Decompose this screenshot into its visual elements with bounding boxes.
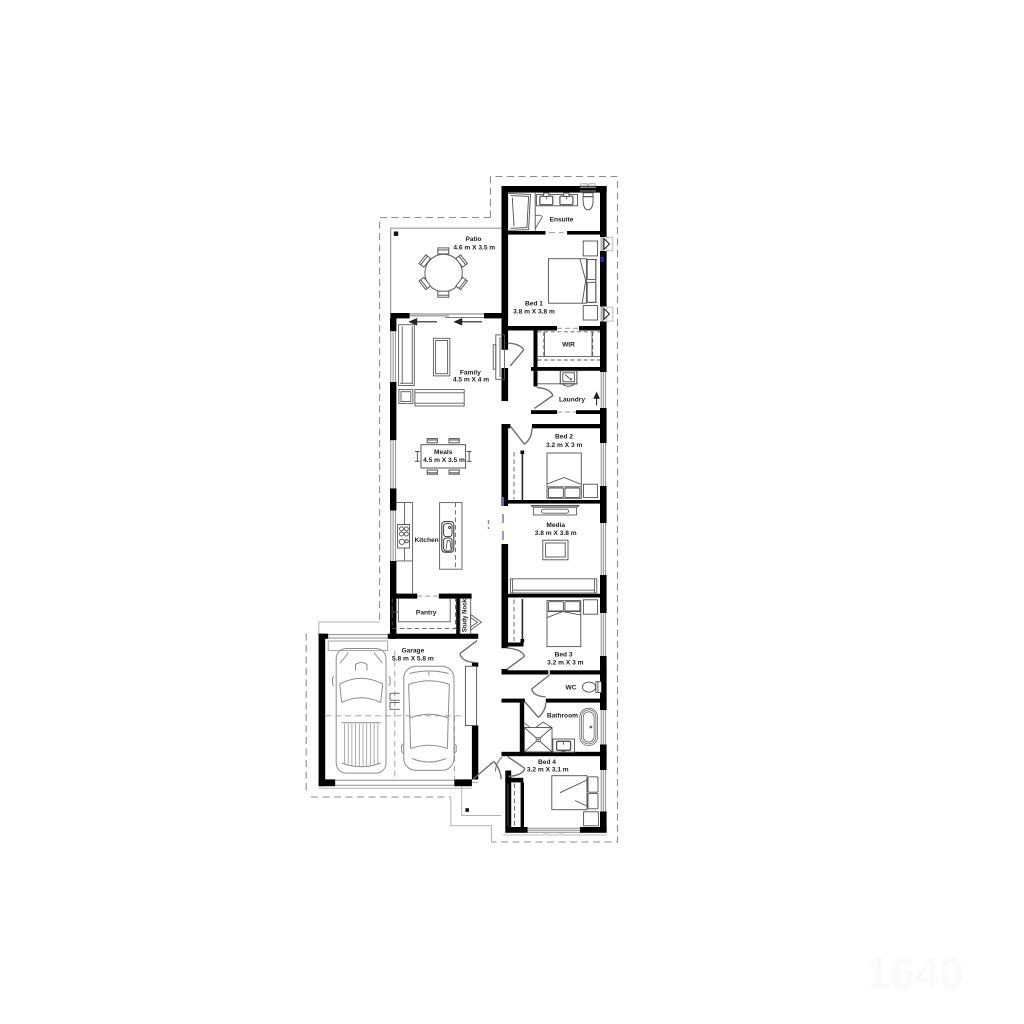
svg-text:Laundry: Laundry bbox=[559, 396, 585, 403]
svg-text:3.8 m X 3.8 m: 3.8 m X 3.8 m bbox=[535, 530, 577, 537]
svg-text:5.8 m X 5.8 m: 5.8 m X 5.8 m bbox=[392, 656, 434, 663]
svg-text:Media: Media bbox=[546, 522, 565, 529]
svg-text:Pantry: Pantry bbox=[416, 610, 437, 617]
svg-text:Bed 2: Bed 2 bbox=[555, 434, 573, 441]
svg-text:3.8 m X 3.8 m: 3.8 m X 3.8 m bbox=[513, 309, 555, 316]
svg-text:Kitchen: Kitchen bbox=[415, 537, 439, 544]
svg-text:Bed 1: Bed 1 bbox=[525, 301, 543, 308]
svg-text:Bed 3: Bed 3 bbox=[555, 651, 573, 658]
svg-text:Study Nook: Study Nook bbox=[463, 598, 469, 632]
svg-text:Patio: Patio bbox=[465, 236, 481, 243]
svg-text:Family: Family bbox=[460, 369, 481, 376]
svg-text:1640: 1640 bbox=[866, 949, 964, 998]
svg-text:Garage: Garage bbox=[402, 648, 425, 655]
svg-text:3.2 m X 3 m: 3.2 m X 3 m bbox=[546, 442, 582, 449]
svg-text:4.5 m X 3.5 m: 4.5 m X 3.5 m bbox=[423, 457, 465, 464]
svg-text:Bed 4: Bed 4 bbox=[538, 759, 556, 766]
svg-text:Meals: Meals bbox=[434, 449, 453, 456]
svg-text:Bathroom: Bathroom bbox=[547, 713, 578, 720]
svg-text:Ensuite: Ensuite bbox=[550, 216, 574, 223]
svg-text:4.6 m X 3.5 m: 4.6 m X 3.5 m bbox=[453, 244, 495, 251]
svg-text:WIR: WIR bbox=[562, 342, 575, 349]
svg-text:WC: WC bbox=[566, 685, 577, 692]
svg-text:3.2 m X 3 m: 3.2 m X 3 m bbox=[547, 660, 583, 667]
svg-text:3.2 m X 3.1 m: 3.2 m X 3.1 m bbox=[527, 767, 569, 774]
svg-text:4.5 m X 4 m: 4.5 m X 4 m bbox=[453, 376, 489, 383]
